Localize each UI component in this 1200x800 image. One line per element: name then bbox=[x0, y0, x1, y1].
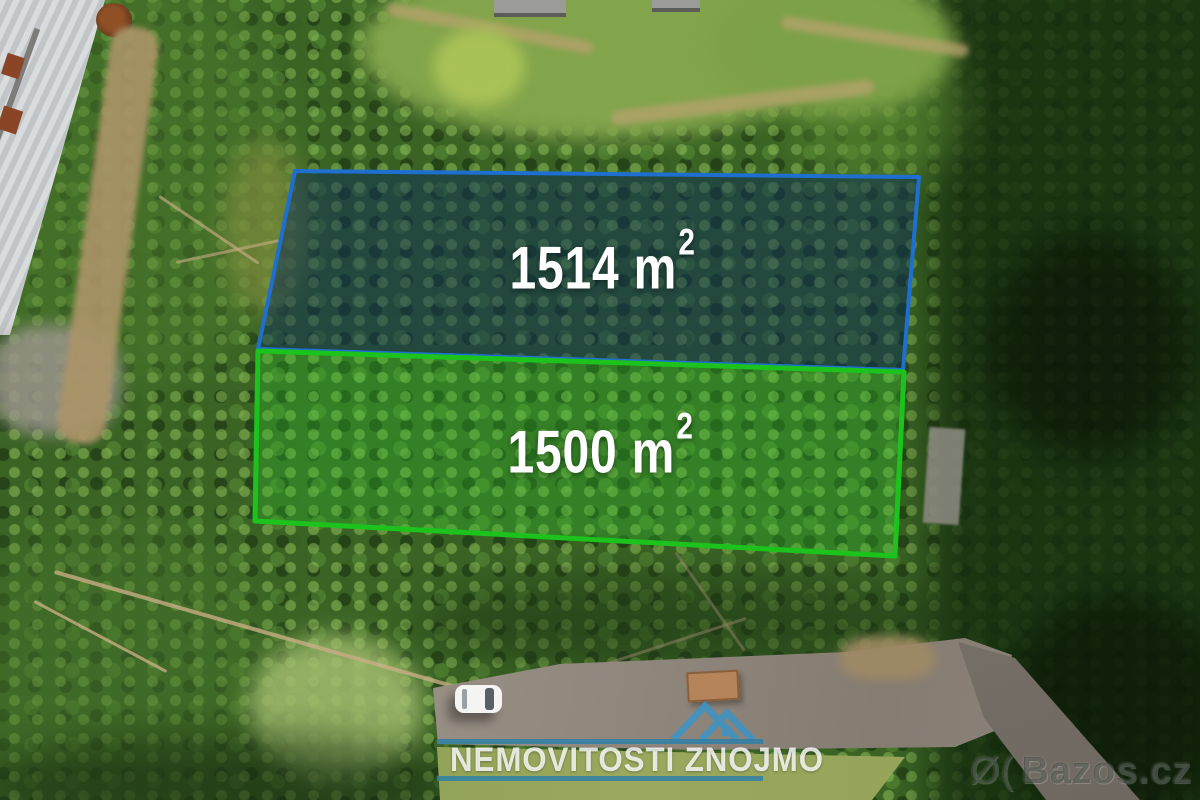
aerial-photo: 1514 m2 1500 m2 NEMOVITOSTI ZNOJMO Ø(Baz… bbox=[0, 0, 1200, 800]
watermark-rule-bottom bbox=[437, 776, 763, 781]
parcel-outlines bbox=[0, 0, 1200, 800]
bazos-logo-icon: Ø( bbox=[970, 750, 1014, 792]
area-exponent: 2 bbox=[676, 404, 693, 446]
area-value: 1500 m bbox=[508, 419, 676, 486]
house-roof-icon bbox=[663, 697, 763, 743]
parcel-blue-area-label: 1514 m2 bbox=[510, 234, 695, 303]
agency-watermark: NEMOVITOSTI ZNOJMO bbox=[450, 741, 750, 780]
bazos-watermark: Ø(Bazos.cz bbox=[970, 750, 1192, 793]
bazos-name: Bazos.cz bbox=[1021, 750, 1192, 792]
parcel-green-area-label: 1500 m2 bbox=[508, 418, 693, 487]
area-exponent: 2 bbox=[678, 220, 695, 262]
area-value: 1514 m bbox=[510, 235, 678, 302]
